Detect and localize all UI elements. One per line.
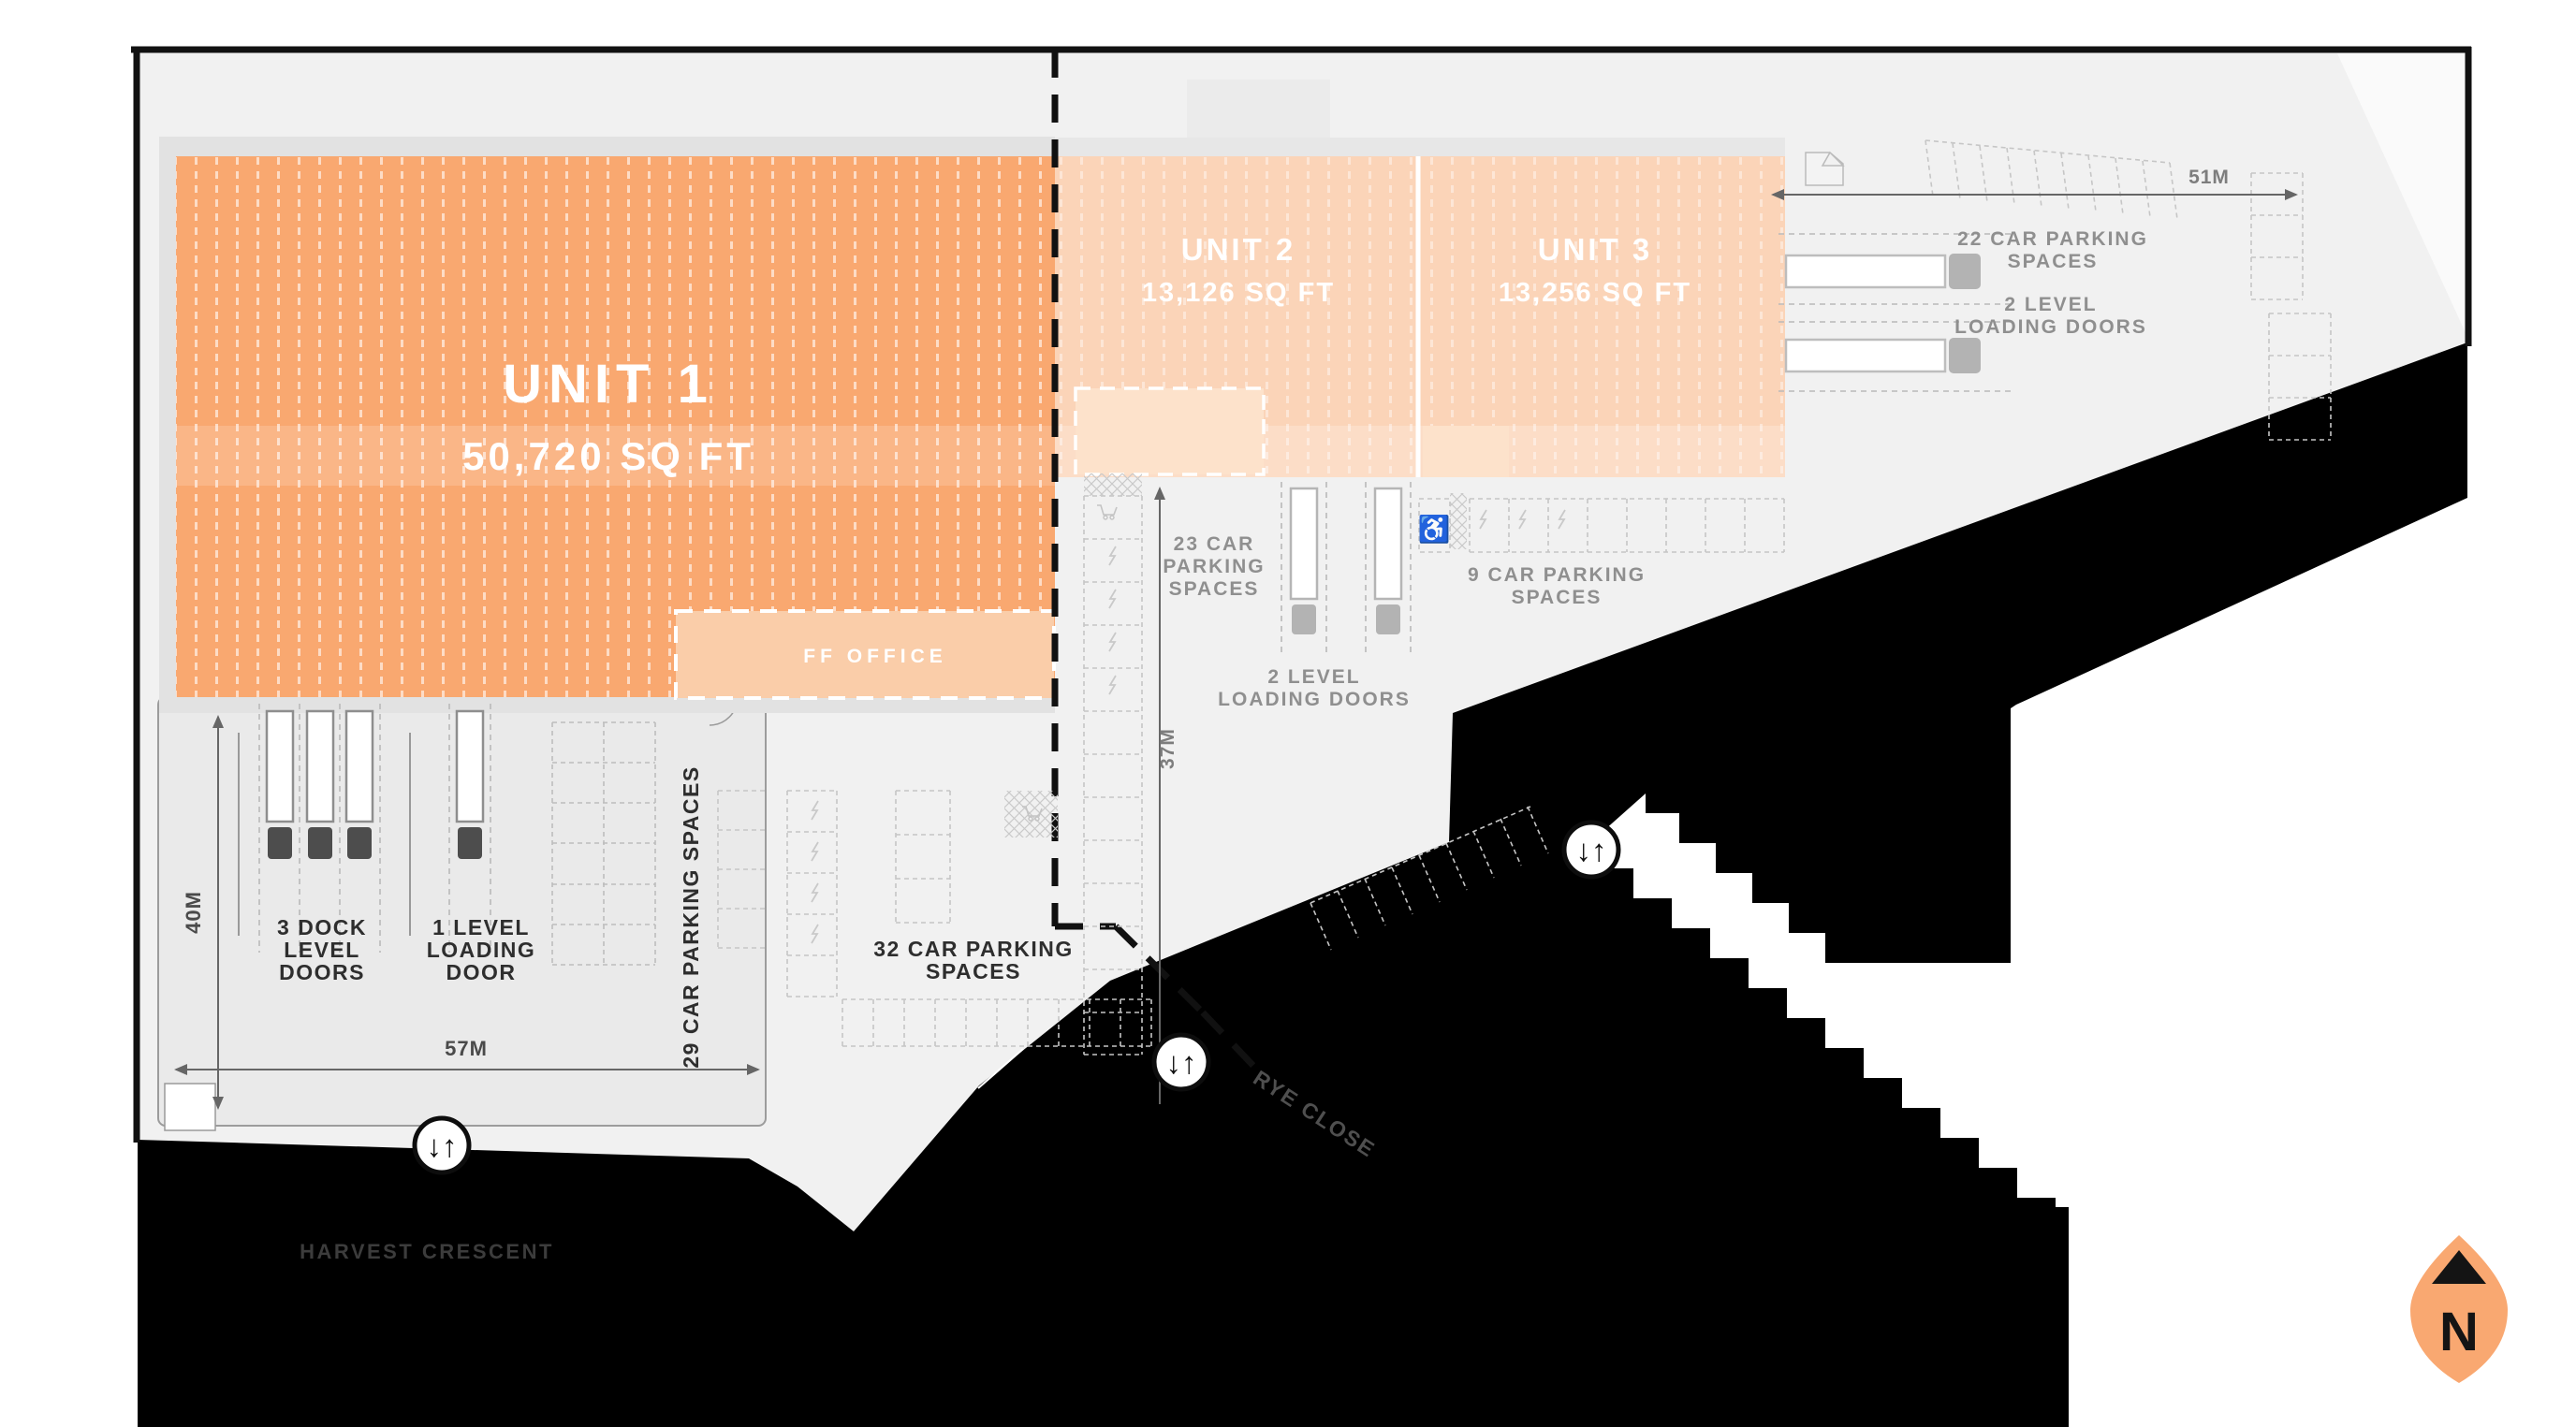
truck-icon [307, 711, 333, 859]
svg-text:↓↑: ↓↑ [427, 1128, 458, 1163]
unit2-area: 13,126 SQ FT [1142, 278, 1335, 308]
units23-strip [1055, 138, 1785, 156]
wheelchair-icon: ♿ [1418, 514, 1451, 545]
truck-icon [1291, 488, 1317, 634]
ff-office-label: FF OFFICE [803, 646, 947, 667]
svg-text:SPACES: SPACES [1512, 587, 1603, 608]
truck-icon [1786, 338, 1981, 373]
unit3-name: UNIT 3 [1538, 232, 1653, 267]
dock-doors-label: 3 DOCK LEVEL DOORS [277, 915, 367, 984]
dim-51m-label: 51M [2188, 167, 2230, 188]
svg-text:↓↑: ↓↑ [1166, 1045, 1197, 1080]
truck-icon [1375, 488, 1401, 634]
truck-icon [457, 711, 483, 859]
top-notch-structure [1187, 80, 1330, 138]
access-marker-rye-east: ↓↑ [1564, 823, 1618, 877]
dim-37m-label: 37M [1157, 728, 1178, 769]
parking-23-label: 23 CAR PARKING SPACES [1163, 533, 1265, 600]
access-marker-harvest: ↓↑ [415, 1118, 469, 1172]
north-letter: N [2439, 1302, 2479, 1362]
svg-text:22 CAR PARKING: 22 CAR PARKING [1957, 228, 2148, 250]
dim-57m-label: 57M [445, 1037, 488, 1060]
yard-gate [165, 1084, 215, 1130]
unit1-area: 50,720 SQ FT [462, 434, 754, 478]
svg-text:LEVEL: LEVEL [284, 938, 360, 962]
access-marker-rye-west: ↓↑ [1154, 1035, 1208, 1089]
unit3-area: 13,256 SQ FT [1499, 278, 1691, 308]
unit2-name: UNIT 2 [1181, 232, 1296, 267]
svg-text:↓↑: ↓↑ [1576, 833, 1607, 867]
svg-text:2 LEVEL: 2 LEVEL [1267, 666, 1360, 688]
truck-icon [346, 711, 373, 859]
svg-text:DOOR: DOOR [446, 960, 517, 984]
north-compass: N [2410, 1235, 2508, 1383]
unit1-name: UNIT 1 [503, 354, 714, 415]
dim-40m-label: 40M [182, 891, 205, 934]
truck-icon [267, 711, 293, 859]
svg-text:2 LEVEL: 2 LEVEL [2004, 294, 2097, 315]
svg-text:SPACES: SPACES [926, 959, 1021, 983]
svg-text:PARKING: PARKING [1163, 556, 1265, 577]
truck-icon [1786, 254, 1981, 289]
svg-text:1 LEVEL: 1 LEVEL [432, 915, 530, 939]
svg-text:DOORS: DOORS [279, 960, 365, 984]
svg-text:SPACES: SPACES [2008, 251, 2099, 272]
unit3-subroom [1423, 426, 1509, 477]
parking-29-label: 29 CAR PARKING SPACES [679, 765, 703, 1068]
site-plan-page: ♿ ↓↑ ↓↑ ↓↑ UNIT 1 50,72 [0, 0, 2576, 1427]
unit2-subroom [1076, 388, 1264, 474]
svg-text:3 DOCK: 3 DOCK [277, 915, 367, 939]
svg-text:LOADING DOORS: LOADING DOORS [1218, 689, 1411, 710]
svg-text:32 CAR PARKING: 32 CAR PARKING [873, 937, 1074, 961]
svg-text:LOADING: LOADING [427, 938, 536, 962]
svg-text:9 CAR PARKING: 9 CAR PARKING [1468, 564, 1646, 586]
svg-text:LOADING DOORS: LOADING DOORS [1954, 316, 2147, 338]
site-plan: ♿ ↓↑ ↓↑ ↓↑ UNIT 1 50,72 [0, 0, 2576, 1427]
street-harvest-crescent: HARVEST CRESCENT [300, 1240, 554, 1263]
svg-text:23 CAR: 23 CAR [1174, 533, 1255, 555]
svg-text:SPACES: SPACES [1169, 578, 1260, 600]
